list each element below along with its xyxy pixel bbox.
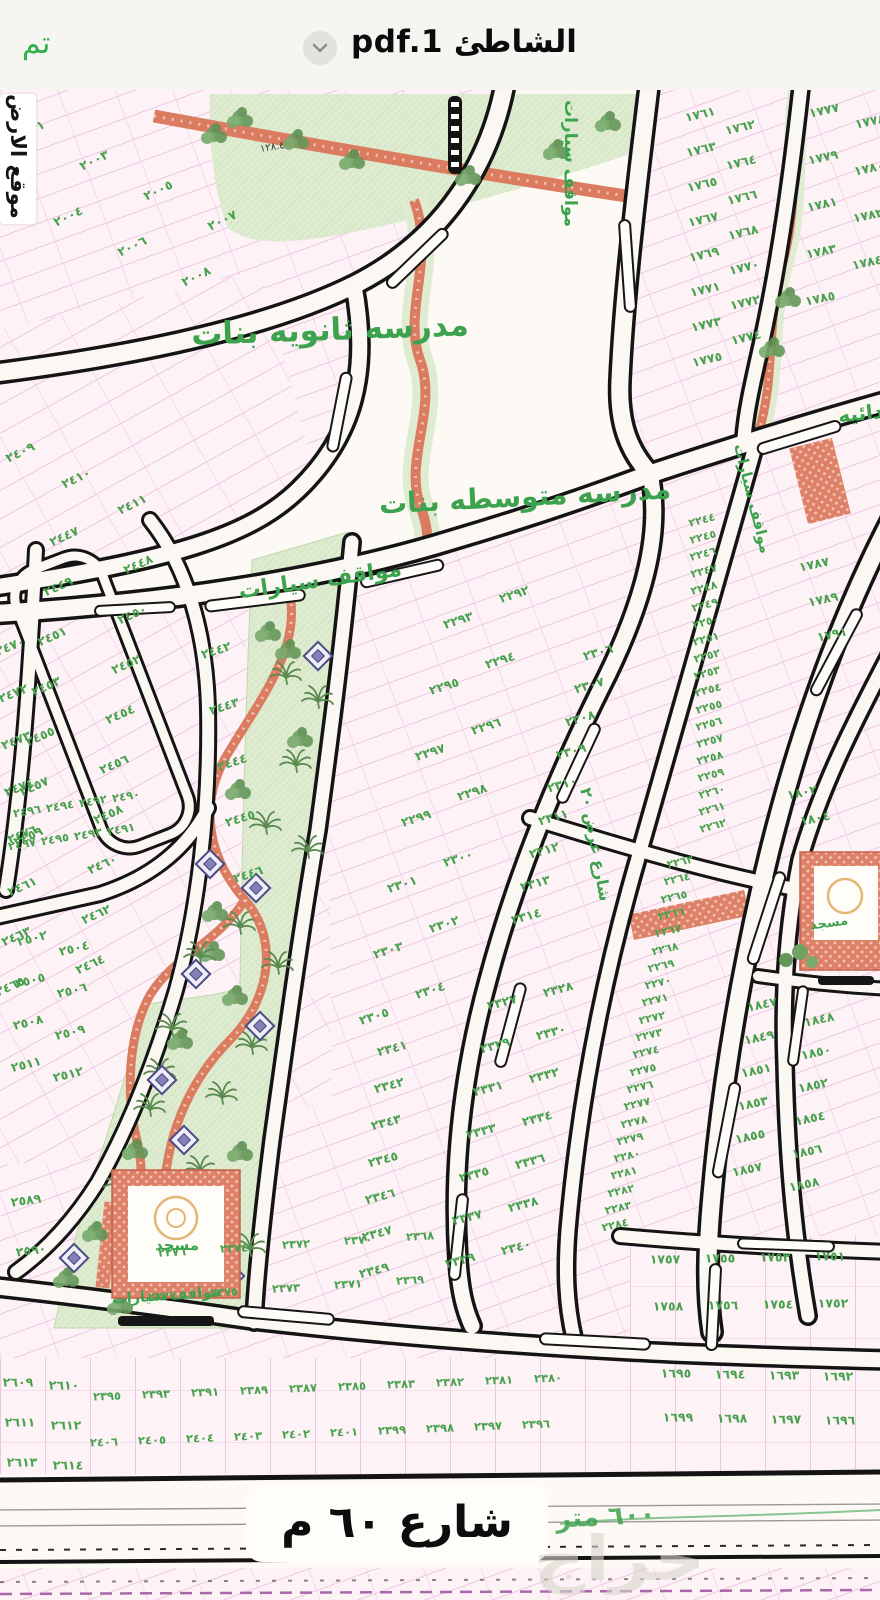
document-title: الشاطئ pdf.1 [351, 24, 577, 60]
chevron-down-icon[interactable] [303, 31, 337, 65]
pdf-viewer: تم الشاطئ pdf.1 [0, 0, 880, 1600]
zebra-median [448, 96, 462, 174]
title-group: الشاطئ pdf.1 [0, 24, 880, 65]
map-graphics [0, 90, 880, 1600]
navigation-bar: تم الشاطئ pdf.1 [0, 0, 880, 90]
map-document[interactable]: ٢٠٠١٢٠٠٣٢٠٠٥٢٠٠٧٢٠٠٢٢٠٠٤٢٠٠٦٢٠٠٨٢٤٠٩٢٤١٠… [0, 90, 880, 1600]
